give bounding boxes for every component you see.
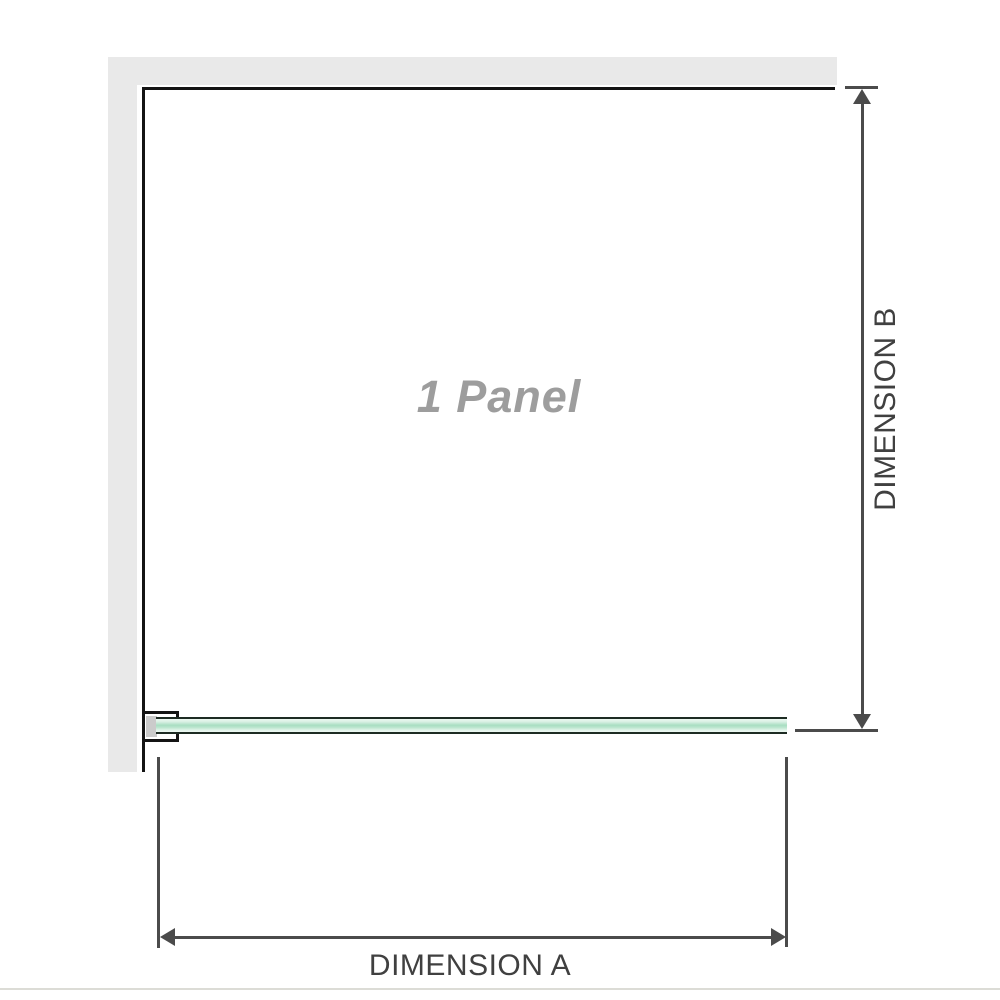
dimension-a-line <box>172 936 773 939</box>
panel-outline-top <box>142 87 835 90</box>
bottom-divider <box>0 988 1000 990</box>
dimension-b-label: DIMENSION B <box>869 307 903 511</box>
arrow-down-icon <box>853 714 871 729</box>
dimension-b-tick-bottom <box>795 729 878 732</box>
glass-panel-bar <box>156 717 787 734</box>
panel-outline-left <box>142 87 145 711</box>
panel-dimension-diagram: DIMENSION B DIMENSION A 1 Panel <box>0 0 1000 1000</box>
wall-left <box>108 57 137 772</box>
panel-outline-left-lower <box>142 742 145 772</box>
arrow-up-icon <box>853 89 871 104</box>
panel-count-label: 1 Panel <box>417 371 582 423</box>
arrow-right-icon <box>771 928 786 946</box>
arrow-left-icon <box>160 928 175 946</box>
wall-top <box>108 57 837 85</box>
dimension-a-extension-right <box>785 757 788 947</box>
dimension-b-line <box>861 100 864 718</box>
dimension-a-extension-left <box>157 757 160 948</box>
dimension-a-label: DIMENSION A <box>369 949 571 983</box>
